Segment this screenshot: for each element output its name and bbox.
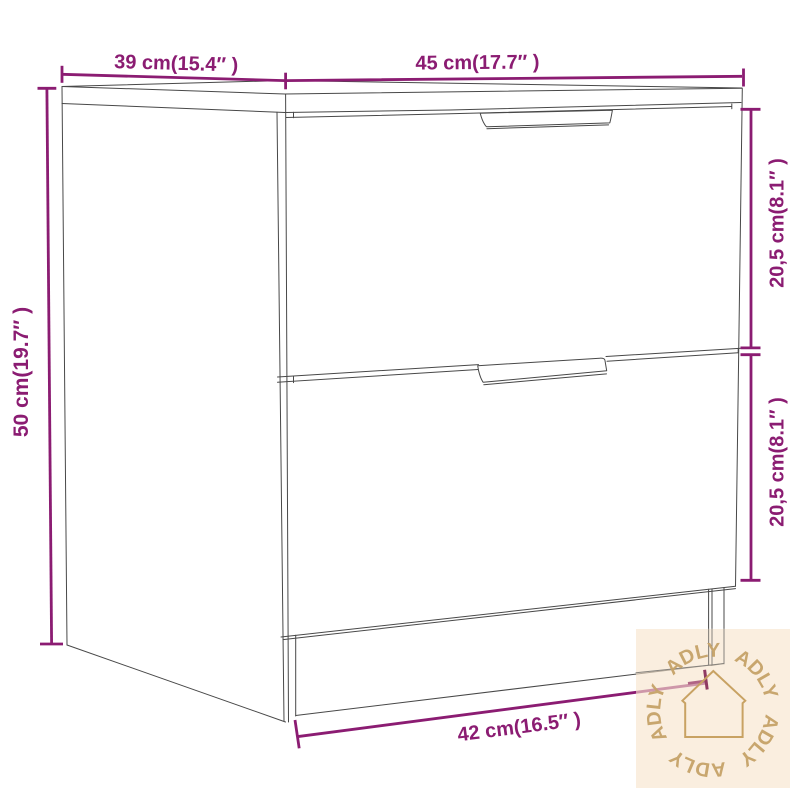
svg-text:45 cm(17.7″ ): 45 cm(17.7″ ) (415, 51, 539, 74)
svg-text:20,5 cm(8.1″ ): 20,5 cm(8.1″ ) (767, 397, 789, 527)
svg-text:39 cm(15.4″ ): 39 cm(15.4″ ) (114, 51, 239, 76)
svg-text:20,5 cm(8.1″ ): 20,5 cm(8.1″ ) (767, 158, 789, 288)
svg-text:50 cm(19.7″ ): 50 cm(19.7″ ) (10, 307, 33, 437)
